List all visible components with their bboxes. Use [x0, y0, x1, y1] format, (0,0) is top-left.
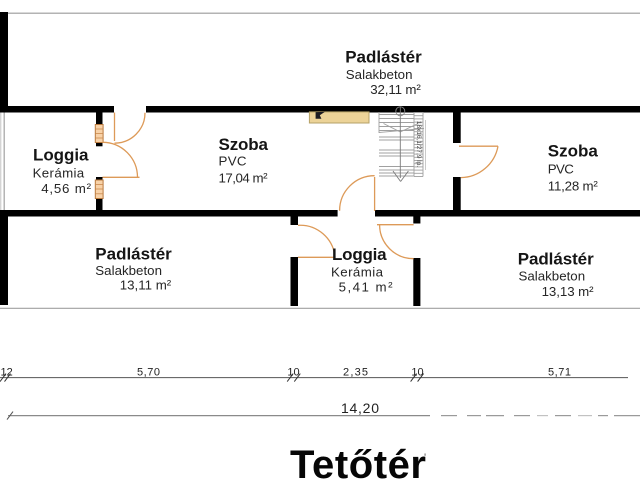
svg-text:12: 12 [1, 367, 13, 379]
svg-text:PVC: PVC [548, 161, 574, 176]
svg-text:13,11 m²: 13,11 m² [120, 278, 172, 293]
svg-text:14,20: 14,20 [341, 400, 379, 416]
svg-text:2,35: 2,35 [343, 367, 368, 379]
svg-text:Salakbeton: Salakbeton [95, 263, 162, 278]
svg-text:Padlástér: Padlástér [95, 245, 172, 264]
svg-text:5,71: 5,71 [548, 367, 571, 379]
svg-text:Loggia: Loggia [33, 145, 89, 164]
svg-text:13,13 m²: 13,13 m² [542, 284, 595, 299]
svg-text:32,11 m²: 32,11 m² [370, 82, 421, 97]
svg-text:5,41 m²: 5,41 m² [339, 280, 393, 295]
svg-text:Padlástér: Padlástér [345, 47, 422, 66]
svg-text:10: 10 [287, 367, 299, 379]
svg-text:5,70: 5,70 [137, 367, 160, 379]
svg-text:Szoba: Szoba [548, 141, 599, 160]
svg-text:Kerámia: Kerámia [33, 165, 85, 180]
svg-text:Padlástér: Padlástér [518, 249, 594, 268]
svg-text:Salakbeton: Salakbeton [346, 67, 413, 82]
svg-text:18x16,1/27,9 lp.: 18x16,1/27,9 lp. [415, 121, 422, 167]
svg-text:10: 10 [411, 367, 423, 379]
svg-text:Salakbeton: Salakbeton [519, 269, 586, 284]
svg-text:Kerámia: Kerámia [331, 265, 384, 280]
svg-text:17,04 m²: 17,04 m² [219, 171, 269, 186]
svg-text:11,28 m²: 11,28 m² [548, 179, 599, 194]
svg-text:Szoba: Szoba [219, 135, 269, 154]
svg-text:': ' [424, 452, 426, 464]
svg-text:PVC: PVC [219, 154, 247, 169]
svg-text:4,56 m²: 4,56 m² [41, 181, 91, 196]
svg-text:Loggia: Loggia [332, 245, 387, 264]
svg-text:Tetőtér: Tetőtér [290, 443, 426, 480]
